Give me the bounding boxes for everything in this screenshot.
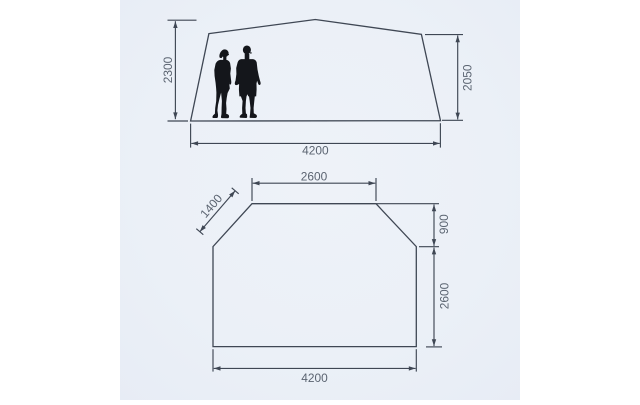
svg-text:2050: 2050: [460, 64, 474, 91]
svg-text:2300: 2300: [161, 56, 175, 83]
svg-text:4200: 4200: [302, 144, 329, 158]
svg-text:900: 900: [437, 214, 451, 234]
svg-text:2600: 2600: [437, 282, 451, 309]
svg-text:2600: 2600: [301, 170, 328, 184]
svg-text:4200: 4200: [301, 371, 328, 385]
